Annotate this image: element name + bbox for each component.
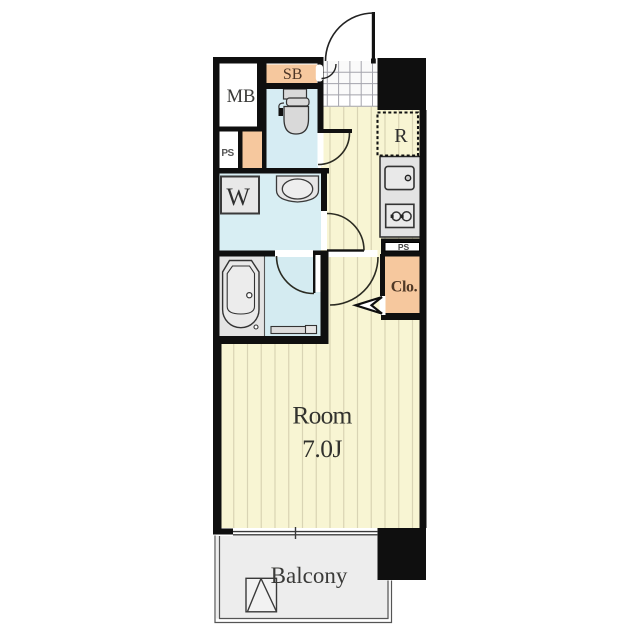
svg-text:R: R — [394, 125, 408, 147]
svg-text:MB: MB — [227, 87, 256, 107]
svg-text:Balcony: Balcony — [271, 563, 348, 588]
svg-text:7.0J: 7.0J — [302, 434, 342, 463]
svg-text:SB: SB — [283, 66, 303, 83]
svg-text:Clo.: Clo. — [391, 278, 418, 295]
svg-text:W: W — [226, 184, 250, 211]
svg-text:Room: Room — [292, 401, 352, 430]
svg-text:PS: PS — [221, 148, 234, 159]
svg-text:PS: PS — [398, 242, 410, 252]
